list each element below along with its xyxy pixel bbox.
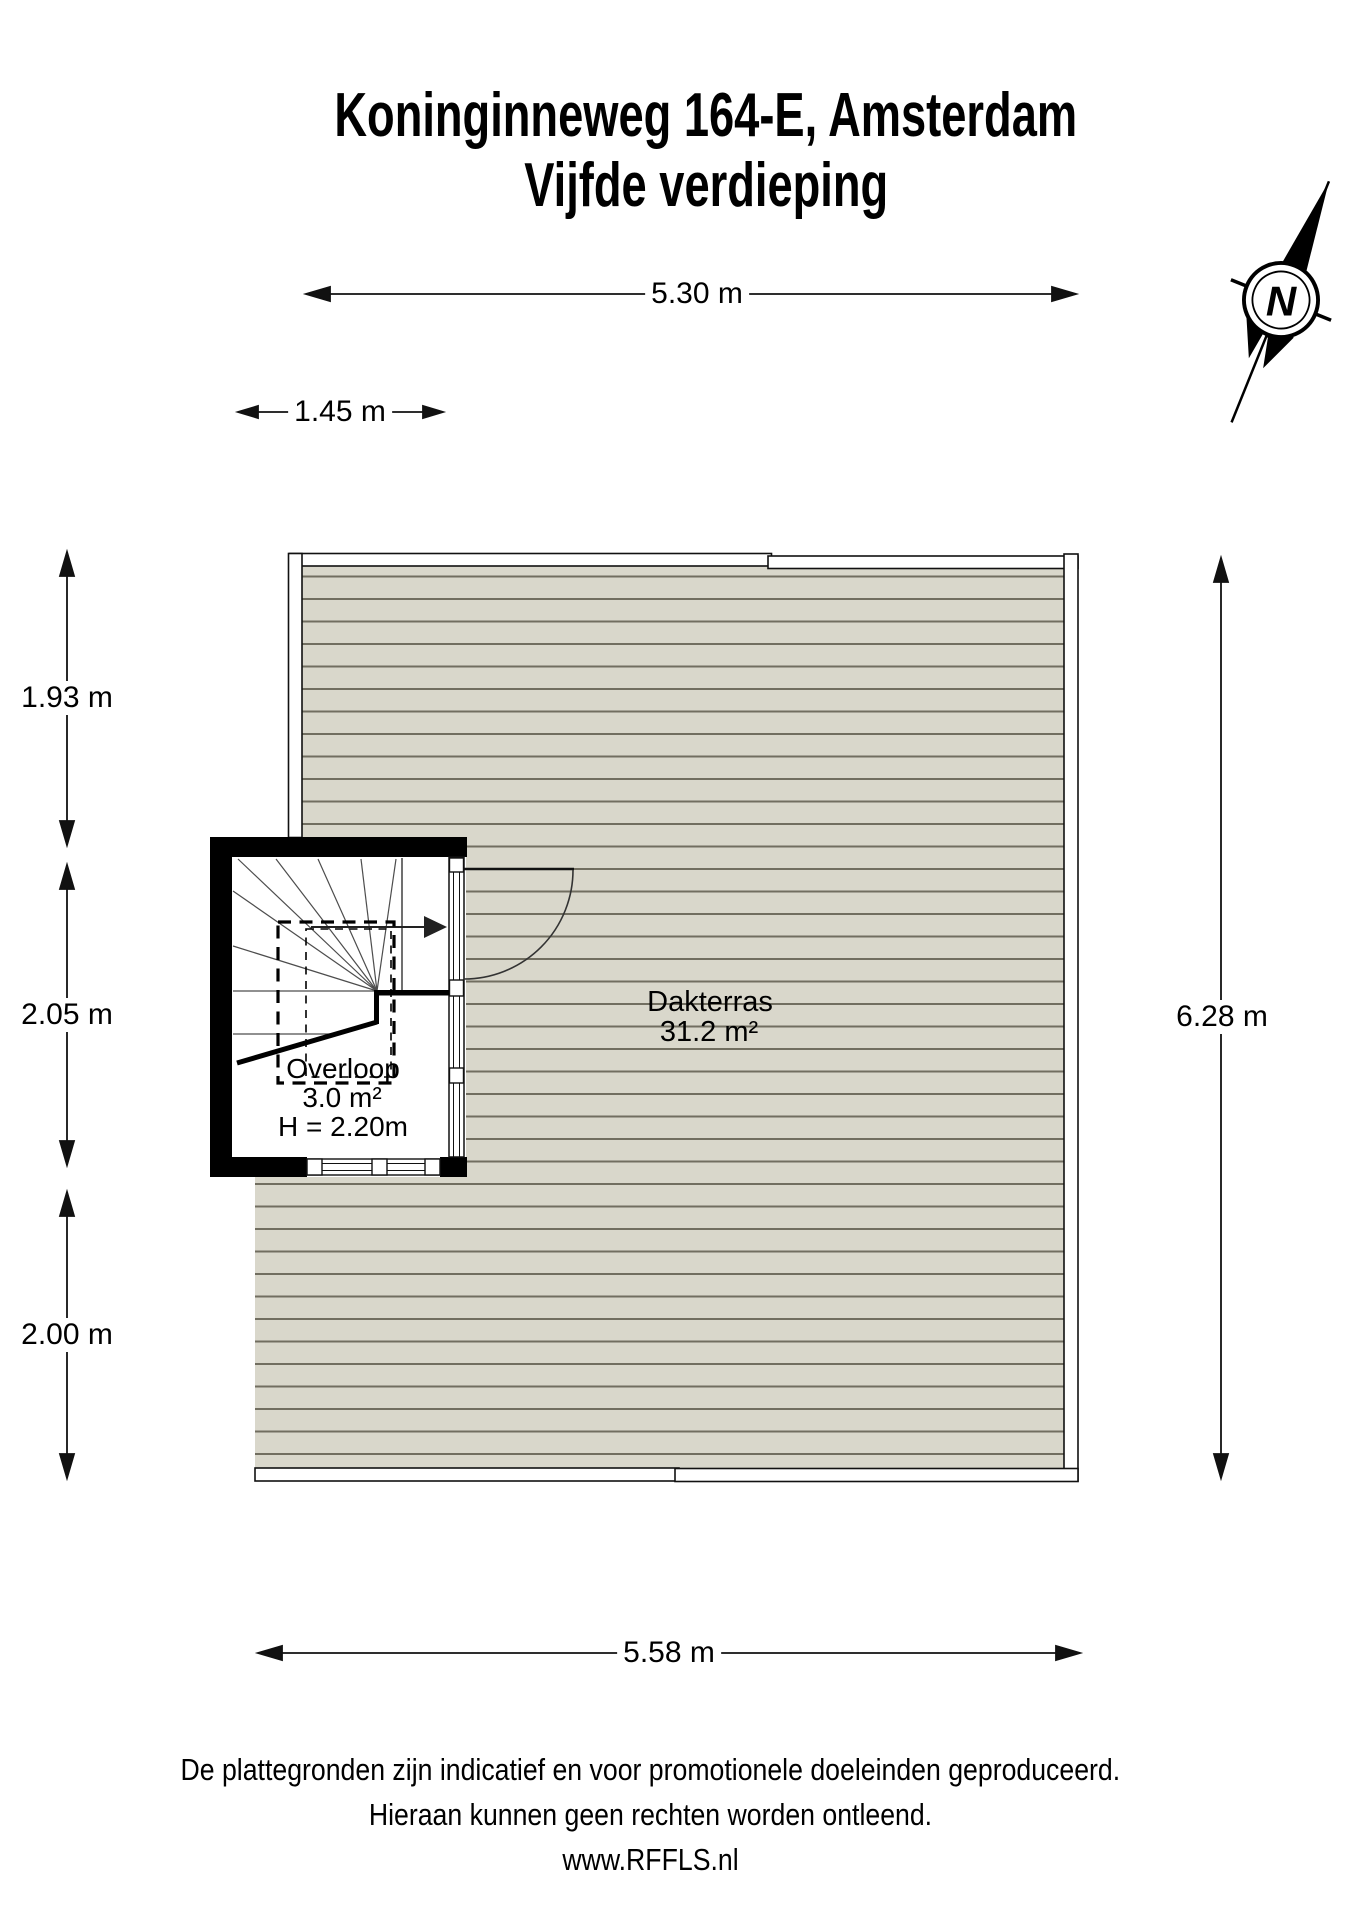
floorplan-page: N Koninginneweg 164-E, Amsterdam Vijfde … xyxy=(0,0,1358,1920)
room-name-terrace: Dakterras xyxy=(647,986,773,1018)
room-area-terrace: 31.2 m² xyxy=(660,1016,758,1048)
title-address: Koninginneweg 164-E, Amsterdam xyxy=(335,81,1078,151)
disclaimer-website: www.RFFLS.nl xyxy=(562,1837,738,1882)
dim-label-top-inner: 1.45 m xyxy=(288,395,392,429)
room-name-landing: Overloop xyxy=(286,1053,400,1085)
compass-north-label: N xyxy=(1266,278,1298,325)
dim-label-left-middle: 2.05 m xyxy=(15,998,119,1032)
dim-label-left-lower: 2.00 m xyxy=(15,1318,119,1352)
dim-label-bottom-overall: 5.58 m xyxy=(617,1636,721,1670)
room-area-landing: 3.0 m² xyxy=(302,1082,381,1114)
landing-glass-wall xyxy=(449,857,464,1157)
dim-label-top-overall: 5.30 m xyxy=(645,277,749,311)
title-floor: Vijfde verdieping xyxy=(524,151,888,221)
page-title: Koninginneweg 164-E, Amsterdam Vijfde ve… xyxy=(54,81,1358,221)
dim-label-right-overall: 6.28 m xyxy=(1170,1000,1274,1034)
dim-label-left-upper: 1.93 m xyxy=(15,681,119,715)
disclaimer: De plattegronden zijn indicatief en voor… xyxy=(0,1747,1300,1882)
room-height-landing: H = 2.20m xyxy=(278,1111,408,1143)
disclaimer-line-2: Hieraan kunnen geen rechten worden ontle… xyxy=(368,1792,931,1837)
disclaimer-line-1: De plattegronden zijn indicatief en voor… xyxy=(180,1747,1120,1792)
landing-window xyxy=(307,1159,440,1175)
